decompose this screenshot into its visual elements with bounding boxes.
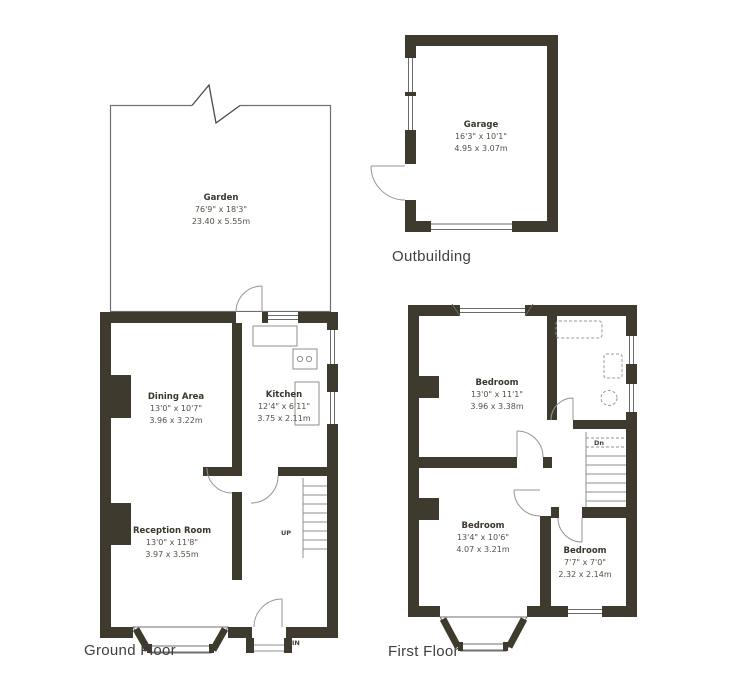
room-size-imperial: 13'0" x 11'8" bbox=[133, 537, 211, 549]
room-size-metric: 3.75 x 2.11m bbox=[257, 413, 310, 425]
first-floor-plan bbox=[408, 304, 637, 651]
room-name: Dining Area bbox=[148, 391, 204, 403]
room-label-garden: Garden 76'9" x 18'3" 23.40 x 5.55m bbox=[192, 192, 250, 228]
room-name: Bedroom bbox=[470, 377, 523, 389]
room-size-metric: 3.97 x 3.55m bbox=[133, 549, 211, 561]
entrance-label: IN bbox=[292, 639, 300, 647]
room-size-imperial: 16'3" x 10'1" bbox=[454, 131, 507, 143]
room-name: Kitchen bbox=[257, 389, 310, 401]
bathtub-icon bbox=[556, 321, 602, 338]
room-name: Bedroom bbox=[558, 545, 611, 557]
floorplan-drawing bbox=[0, 0, 750, 677]
room-size-imperial: 12'4" x 6'11" bbox=[257, 401, 310, 413]
room-size-imperial: 7'7" x 7'0" bbox=[558, 557, 611, 569]
ground-stairs bbox=[303, 478, 327, 558]
room-size-metric: 4.95 x 3.07m bbox=[454, 143, 507, 155]
room-size-metric: 23.40 x 5.55m bbox=[192, 216, 250, 228]
room-size-imperial: 13'0" x 10'7" bbox=[148, 403, 204, 415]
floorplan-canvas: Garden 76'9" x 18'3" 23.40 x 5.55m Dinin… bbox=[0, 0, 750, 677]
floor-label-ground: Ground Floor bbox=[84, 642, 176, 659]
room-name: Bedroom bbox=[456, 520, 509, 532]
room-size-metric: 4.07 x 3.21m bbox=[456, 544, 509, 556]
floor-label-outbuilding: Outbuilding bbox=[392, 248, 471, 265]
first-stairs bbox=[586, 432, 626, 507]
ground-floor-plan bbox=[100, 85, 338, 653]
room-label-bedroom-2: Bedroom 13'4" x 10'6" 4.07 x 3.21m bbox=[456, 520, 509, 556]
stairs-up-label: UP bbox=[281, 529, 291, 537]
room-size-metric: 2.32 x 2.14m bbox=[558, 569, 611, 581]
shower-icon bbox=[604, 354, 622, 378]
room-label-bedroom-3: Bedroom 7'7" x 7'0" 2.32 x 2.14m bbox=[558, 545, 611, 581]
room-label-kitchen: Kitchen 12'4" x 6'11" 3.75 x 2.11m bbox=[257, 389, 310, 425]
bathroom-fixtures bbox=[556, 321, 622, 406]
room-label-reception-room: Reception Room 13'0" x 11'8" 3.97 x 3.55… bbox=[133, 525, 211, 561]
room-size-imperial: 76'9" x 18'3" bbox=[192, 204, 250, 216]
room-size-imperial: 13'0" x 11'1" bbox=[470, 389, 523, 401]
room-name: Reception Room bbox=[133, 525, 211, 537]
garage-openings bbox=[405, 58, 416, 200]
toilet-icon bbox=[601, 391, 617, 406]
room-label-garage: Garage 16'3" x 10'1" 4.95 x 3.07m bbox=[454, 119, 507, 155]
room-label-bedroom-1: Bedroom 13'0" x 11'1" 3.96 x 3.38m bbox=[470, 377, 523, 413]
stairs-down-label: Dn bbox=[594, 439, 604, 447]
room-size-metric: 3.96 x 3.22m bbox=[148, 415, 204, 427]
room-name: Garage bbox=[454, 119, 507, 131]
entrance-porch bbox=[246, 638, 292, 653]
room-label-dining-area: Dining Area 13'0" x 10'7" 3.96 x 3.22m bbox=[148, 391, 204, 427]
room-name: Garden bbox=[192, 192, 250, 204]
room-size-imperial: 13'4" x 10'6" bbox=[456, 532, 509, 544]
room-size-metric: 3.96 x 3.38m bbox=[470, 401, 523, 413]
garage-door-arc bbox=[371, 166, 405, 200]
floor-label-first: First Floor bbox=[388, 643, 459, 660]
